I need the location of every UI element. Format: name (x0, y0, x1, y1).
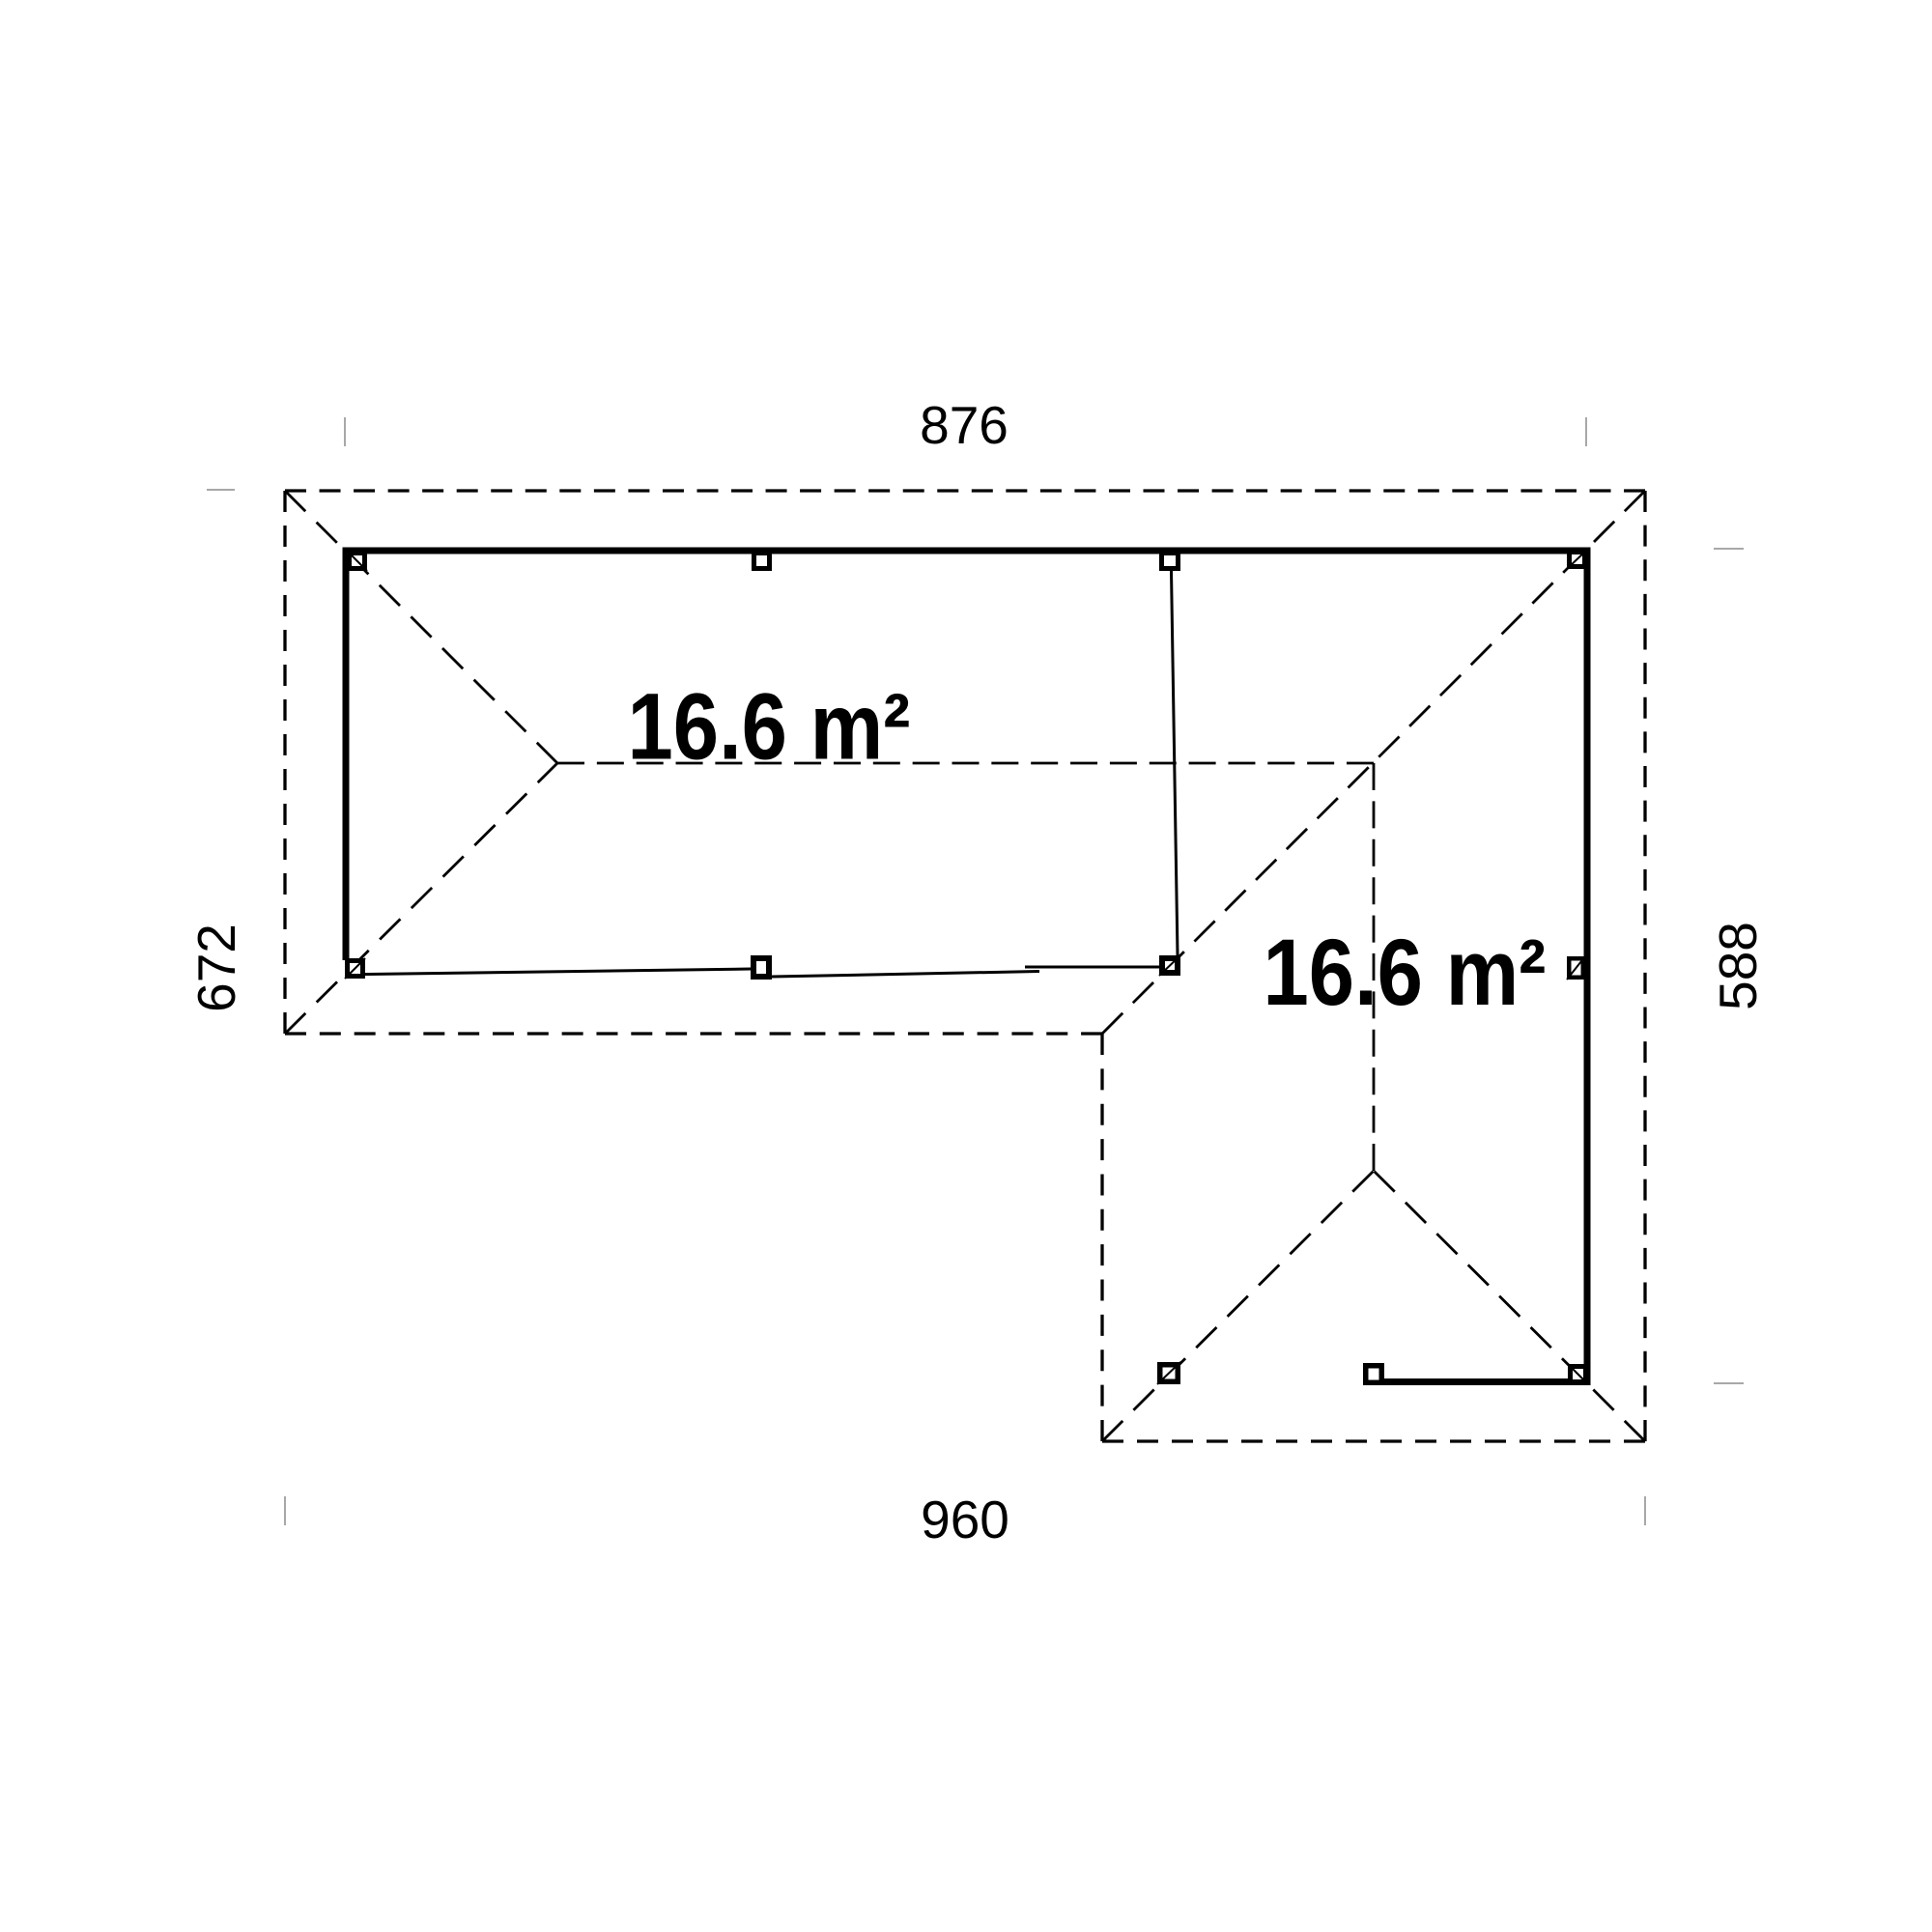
svg-text:16.6 m²: 16.6 m² (628, 674, 911, 780)
svg-text:876: 876 (920, 395, 1009, 455)
svg-text:16.6 m²: 16.6 m² (1264, 920, 1547, 1025)
svg-text:960: 960 (921, 1490, 1009, 1549)
svg-text:672: 672 (186, 923, 246, 1012)
svg-text:588: 588 (1708, 922, 1768, 1010)
